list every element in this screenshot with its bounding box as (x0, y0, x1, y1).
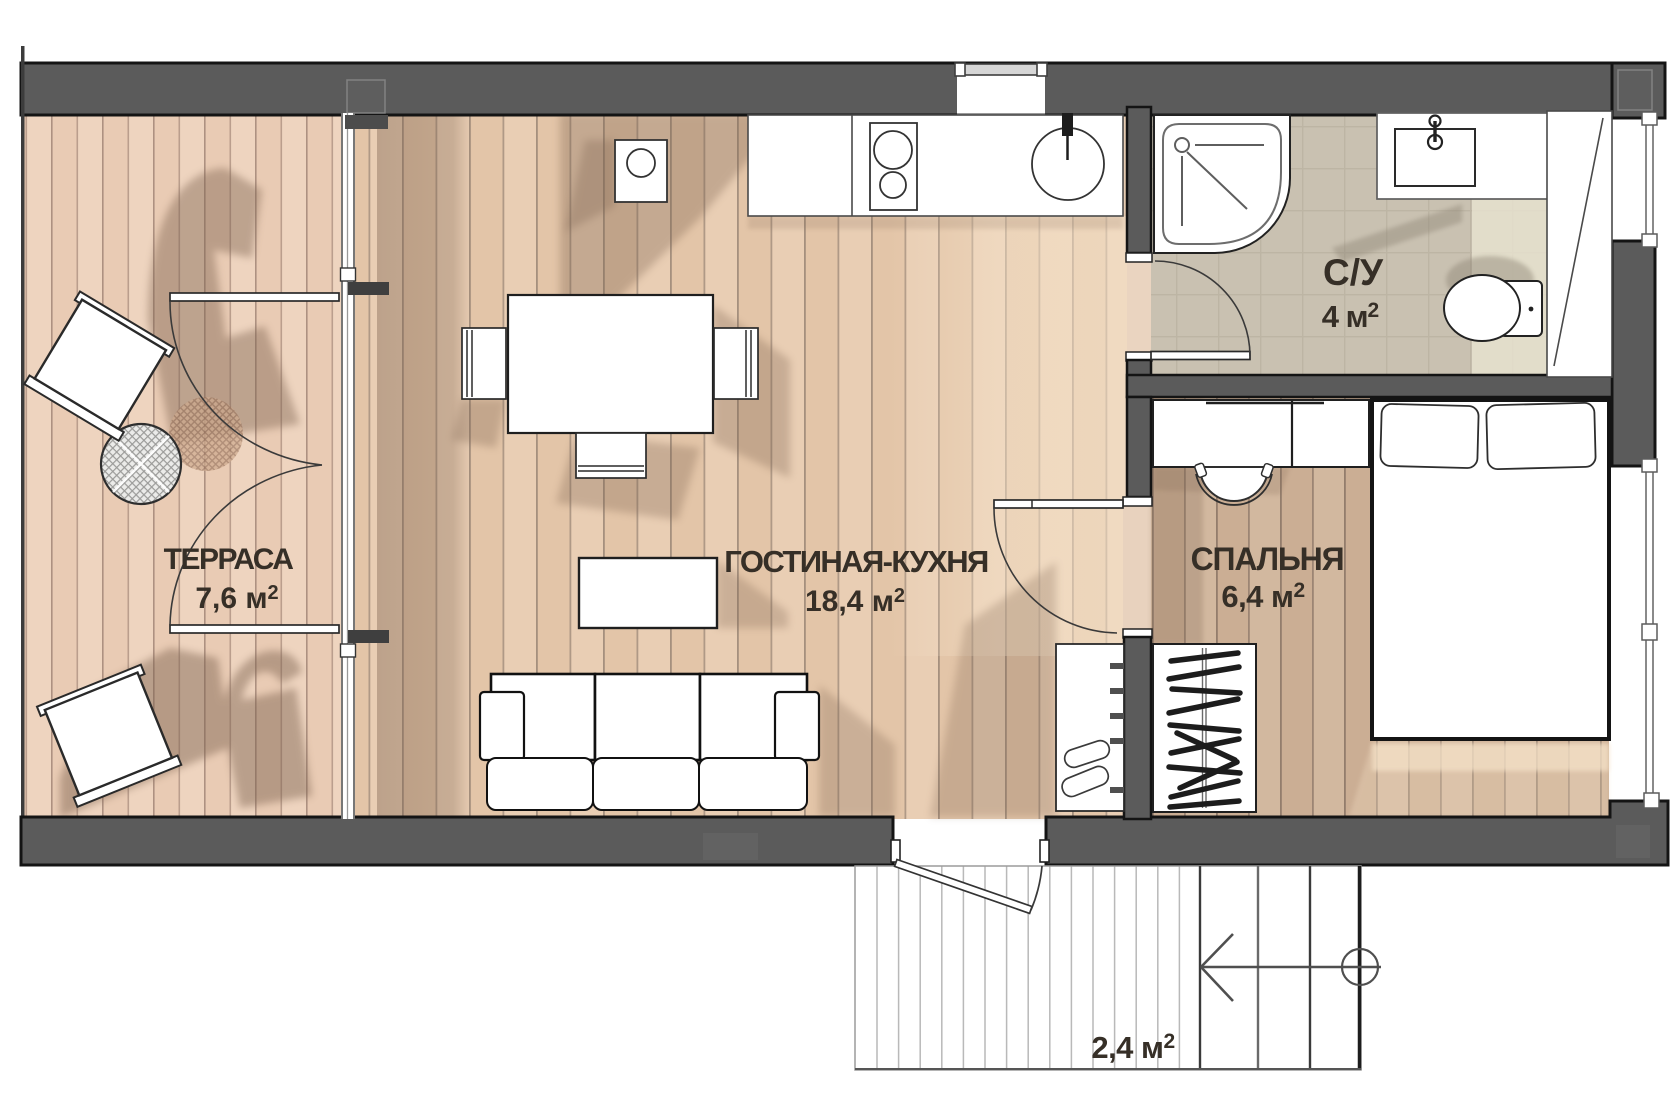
svg-text:18,4 м2: 18,4 м2 (805, 585, 905, 618)
svg-text:7,6 м2: 7,6 м2 (195, 582, 278, 615)
svg-text:2,4 м2: 2,4 м2 (1091, 1030, 1174, 1065)
svg-text:С/У: С/У (1323, 252, 1384, 293)
svg-text:ГОСТИНАЯ-КУХНЯ: ГОСТИНАЯ-КУХНЯ (724, 544, 988, 579)
svg-text:6,4 м2: 6,4 м2 (1221, 579, 1304, 614)
svg-text:ТЕРРАСА: ТЕРРАСА (164, 543, 294, 576)
svg-text:СПАЛЬНЯ: СПАЛЬНЯ (1191, 541, 1344, 577)
